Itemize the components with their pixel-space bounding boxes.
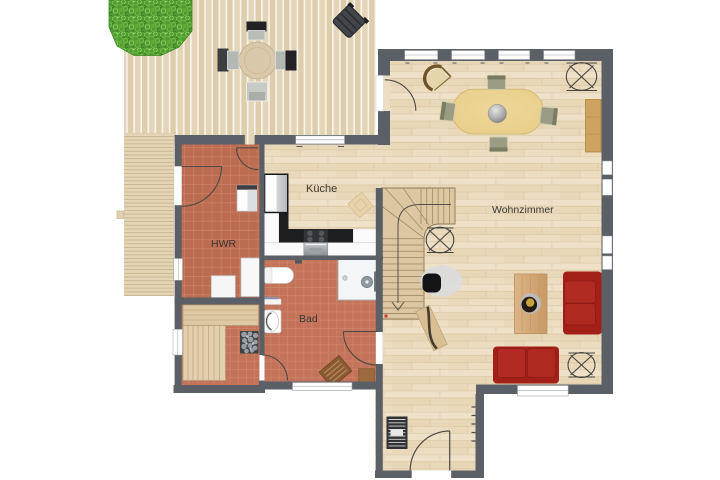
svg-text:Wohnzimmer: Wohnzimmer — [492, 204, 554, 216]
svg-text:Küche: Küche — [306, 183, 337, 195]
svg-text:Bad: Bad — [299, 313, 318, 325]
svg-text:HWR: HWR — [211, 238, 236, 250]
